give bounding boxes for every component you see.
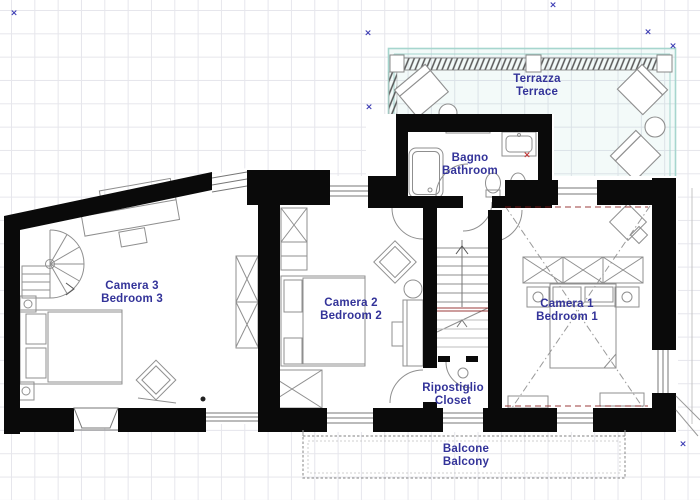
terrace-door-bedroom1 — [558, 182, 597, 203]
wall-bathroom-bottom — [396, 196, 463, 208]
label-bedroom1-en: Bedroom 1 — [536, 311, 598, 324]
label-bedroom3-en: Bedroom 3 — [101, 293, 163, 306]
wall-bottom — [118, 408, 206, 432]
wall-bottom — [258, 408, 327, 432]
wall-bottom — [4, 408, 74, 432]
label-bathroom: Bagno Bathroom — [442, 152, 498, 178]
label-bathroom-en: Bathroom — [442, 165, 498, 178]
window-bedroom1-bottom — [557, 410, 593, 426]
label-bedroom3-it: Camera 3 — [101, 280, 163, 293]
label-bedroom1: Camera 1 Bedroom 1 — [536, 298, 598, 324]
wall-bathroom-left — [396, 114, 408, 208]
terrace-table — [645, 117, 665, 137]
wall-bathroom-top — [396, 114, 552, 132]
label-bathroom-it: Bagno — [442, 152, 498, 165]
wall-bedroom1-left — [488, 210, 502, 432]
survey-cross-icon: × — [523, 152, 531, 161]
wall-bottom — [373, 408, 443, 432]
survey-cross-icon: × — [365, 104, 373, 113]
survey-cross-icon: × — [10, 10, 18, 19]
label-balcony-en: Balcony — [443, 456, 489, 469]
wall-stair-left — [423, 208, 437, 368]
window-bedroom2-bottom — [327, 410, 373, 426]
french-window-bedroom3 — [206, 410, 258, 424]
wall-bedroom2-left — [258, 176, 280, 408]
wall-bottom — [483, 408, 557, 432]
label-bedroom3: Camera 3 Bedroom 3 — [101, 280, 163, 306]
label-bedroom2-en: Bedroom 2 — [320, 310, 382, 323]
label-closet-it: Ripostiglio — [422, 382, 484, 395]
railing-post — [526, 55, 541, 72]
railing-post — [390, 55, 404, 72]
door-jamb — [438, 356, 450, 362]
wall-right — [652, 178, 676, 350]
railing-post — [657, 55, 672, 72]
label-closet-en: Closet — [422, 395, 484, 408]
survey-cross-icon: × — [679, 441, 687, 450]
window-bedroom2-top — [330, 180, 368, 202]
label-terrace-it: Terrazza — [513, 73, 560, 86]
floor-dot — [201, 397, 206, 402]
survey-cross-icon: × — [364, 30, 372, 39]
survey-cross-icon: × — [644, 29, 652, 38]
label-bedroom1-it: Camera 1 — [536, 298, 598, 311]
label-closet: Ripostiglio Closet — [422, 382, 484, 408]
exterior-lines — [676, 188, 700, 436]
label-balcony-it: Balcone — [443, 443, 489, 456]
label-bedroom2-it: Camera 2 — [320, 297, 382, 310]
door-jamb — [466, 356, 478, 362]
window-bedroom3-bottom — [74, 408, 118, 430]
terrace-railing-left — [389, 72, 397, 118]
label-terrace-en: Terrace — [513, 86, 560, 99]
survey-cross-icon: × — [669, 43, 677, 52]
wall-left — [4, 216, 20, 434]
survey-cross-icon: × — [549, 2, 557, 11]
balcony-door — [443, 410, 483, 426]
label-bedroom2: Camera 2 Bedroom 2 — [320, 297, 382, 323]
label-terrace: Terrazza Terrace — [513, 73, 560, 99]
window-right-wall — [654, 350, 674, 393]
label-balcony: Balcone Balcony — [443, 443, 489, 469]
floorplan-svg — [0, 0, 700, 500]
wall-bottom — [593, 408, 676, 432]
floorplan-page: Terrazza Terrace Bagno Bathroom Camera 3… — [0, 0, 700, 500]
wall-bedroom1-top — [505, 180, 558, 205]
